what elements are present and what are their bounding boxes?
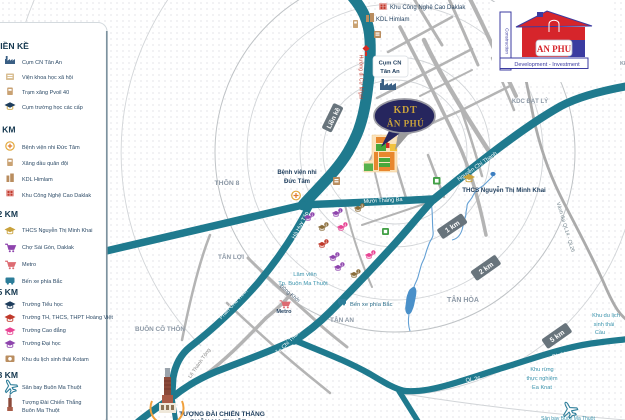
- svg-text:Trạm xăng Pvoil 40: Trạm xăng Pvoil 40: [22, 90, 69, 96]
- svg-text:1 KM: 1 KM: [0, 125, 16, 135]
- svg-text:TÂN HÒA: TÂN HÒA: [447, 295, 479, 304]
- svg-text:Chợ Sài Gòn, Daklak: Chợ Sài Gòn, Daklak: [22, 245, 74, 251]
- svg-text:2: 2: [358, 270, 360, 274]
- svg-text:Ea Knat: Ea Knat: [532, 385, 552, 391]
- svg-text:Buôn Ma Thuột: Buôn Ma Thuột: [22, 408, 60, 414]
- svg-text:LIỀN KỀ: LIỀN KỀ: [0, 41, 29, 51]
- svg-text:THCS Nguyễn Thị Minh Khai: THCS Nguyễn Thị Minh Khai: [462, 187, 546, 194]
- svg-text:Cụm CN Tân An: Cụm CN Tân An: [22, 60, 62, 66]
- svg-text:1: 1: [312, 213, 314, 217]
- svg-text:BUÔN CÔ THÔN: BUÔN CÔ THÔN: [135, 324, 185, 333]
- svg-text:3: 3: [342, 263, 344, 267]
- svg-text:Trường Cao đẳng: Trường Cao đẳng: [22, 327, 66, 334]
- svg-text:Khu Công Nghệ Cao Daklak: Khu Công Nghệ Cao Daklak: [22, 193, 91, 199]
- svg-text:Sân bay Buôn Ma Thuột: Sân bay Buôn Ma Thuột: [22, 385, 82, 391]
- svg-text:2: 2: [337, 253, 339, 257]
- svg-text:1: 1: [340, 209, 342, 213]
- svg-text:ÂN PHÚ: ÂN PHÚ: [387, 119, 424, 129]
- svg-text:thực nghiệm: thực nghiệm: [526, 376, 557, 382]
- svg-text:2 KM: 2 KM: [0, 209, 18, 219]
- svg-text:Sân bay Buôn Ma Thuột: Sân bay Buôn Ma Thuột: [541, 416, 595, 420]
- svg-text:KDL Himlam: KDL Himlam: [22, 177, 53, 183]
- svg-text:5: 5: [362, 204, 364, 208]
- svg-text:Cụm CN: Cụm CN: [379, 61, 402, 67]
- svg-text:Construction: Construction: [505, 28, 510, 54]
- svg-text:2: 2: [326, 240, 328, 244]
- svg-text:Tân An: Tân An: [380, 69, 400, 75]
- svg-text:KDC ĐẠT LÝ: KDC ĐẠT LÝ: [512, 98, 548, 105]
- svg-text:Trường Đại học: Trường Đại học: [22, 341, 61, 347]
- svg-text:Trường Tiểu học: Trường Tiểu học: [22, 301, 63, 308]
- svg-text:Khu rừng: Khu rừng: [530, 367, 553, 373]
- svg-text:5: 5: [326, 223, 328, 227]
- svg-text:8 KM: 8 KM: [0, 370, 18, 380]
- svg-text:Cầu: Cầu: [595, 330, 605, 336]
- svg-text:Xăng dầu quân đội: Xăng dầu quân đội: [22, 161, 68, 167]
- svg-text:Development - Investment: Development - Investment: [514, 62, 580, 68]
- svg-text:Bệnh viện nhi: Bệnh viện nhi: [277, 170, 317, 176]
- svg-text:Lâm viên: Lâm viên: [293, 272, 317, 278]
- svg-text:Viện khoa học xã hội: Viện khoa học xã hội: [22, 75, 73, 81]
- svg-text:Tượng Đài Chiến Thắng: Tượng Đài Chiến Thắng: [22, 399, 81, 406]
- svg-text:Khu du lịch: Khu du lịch: [592, 313, 620, 319]
- svg-text:Khu du lịch sinh thái Kotam: Khu du lịch sinh thái Kotam: [22, 357, 89, 363]
- svg-text:Cụm trường học các cấp: Cụm trường học các cấp: [22, 105, 83, 111]
- svg-text:Metro: Metro: [276, 309, 292, 315]
- svg-text:Bệnh viện nhi Đức Tâm: Bệnh viện nhi Đức Tâm: [22, 145, 80, 151]
- svg-text:Metro: Metro: [22, 262, 36, 268]
- svg-text:TÂN LỢI: TÂN LỢI: [218, 252, 244, 261]
- svg-text:Bến xe phía Bắc: Bến xe phía Bắc: [22, 278, 63, 285]
- svg-text:AN PHU: AN PHU: [537, 44, 572, 54]
- svg-text:sinh thái: sinh thái: [594, 322, 615, 328]
- svg-text:5 KM: 5 KM: [0, 287, 18, 297]
- svg-text:KDL Himlam: KDL Himlam: [376, 17, 409, 23]
- svg-text:KĐT: KĐT: [620, 61, 625, 67]
- svg-text:Bến xe phía Bắc: Bến xe phía Bắc: [350, 301, 393, 308]
- svg-text:THÔN 8: THÔN 8: [215, 178, 240, 187]
- svg-text:Hướng đi Cư M'gar: Hướng đi Cư M'gar: [358, 55, 364, 100]
- svg-text:TÂN AN: TÂN AN: [330, 315, 354, 324]
- svg-text:Khu Công Nghệ Cao Daklak: Khu Công Nghệ Cao Daklak: [390, 5, 466, 11]
- svg-text:4: 4: [373, 251, 375, 255]
- svg-text:Đức Tâm: Đức Tâm: [284, 179, 310, 185]
- svg-text:Trường TH, THCS, THPT Hoàng Vi: Trường TH, THCS, THPT Hoàng Việt: [22, 315, 113, 321]
- svg-text:THCS Nguyễn Thị Minh Khai: THCS Nguyễn Thị Minh Khai: [22, 227, 93, 234]
- svg-text:4: 4: [345, 223, 347, 227]
- svg-text:Tp. Buôn Ma Thuột: Tp. Buôn Ma Thuột: [278, 281, 328, 287]
- svg-text:KDT: KDT: [393, 105, 417, 116]
